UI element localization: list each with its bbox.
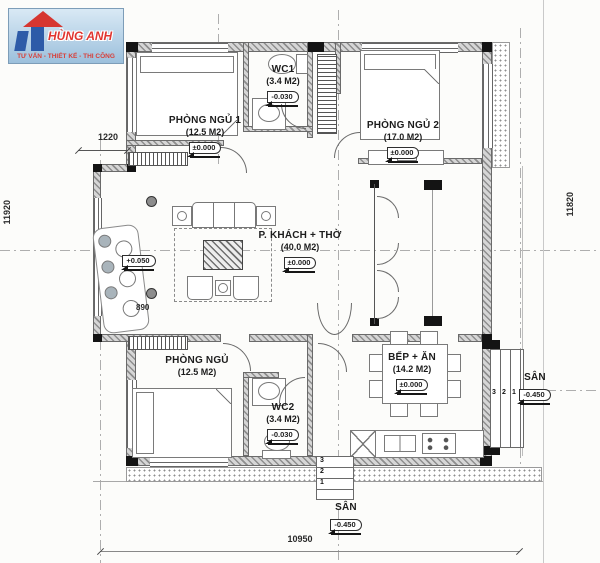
room-area: (12.5 M2) [158,127,252,137]
dimension-living-left: 890 [136,303,149,312]
room-name: PHÒNG NGỦ [150,355,244,367]
stair-stub [482,340,500,349]
level-tag: -0.450 [330,519,361,531]
level-flag [331,533,361,535]
logo-brand-name: HÙNG ANH [48,29,112,43]
room-area: (14.2 M2) [376,364,448,374]
stair-step-number: 3 [492,389,496,396]
toilet-tank [262,450,291,459]
wall-wc2-left [243,372,249,456]
porch-level-label: +0.050 [116,250,162,271]
post [126,42,138,52]
dimension-top-left: 1220 [86,132,130,142]
post [93,164,102,172]
altar-cabinet-line [432,190,433,316]
bed-pillow [140,56,234,73]
side-table [172,206,192,226]
armchair [233,276,259,300]
dining-chair [420,403,438,417]
dimension-bottom-total: 10950 [270,534,330,544]
level-flag [268,105,298,107]
dining-chair [447,354,461,372]
door-arc-partition [377,270,399,292]
kitchen-sink [384,435,416,452]
logo-roof-icon [23,11,63,27]
stair-step-number: 1 [320,479,324,486]
door-arc-partition [377,243,399,265]
room-label-kitchen: BẾP + ĂN (14.2 M2) ±0.000 [376,352,448,395]
dimension-line [78,150,128,151]
dimension-line [100,551,520,552]
axis-marker [146,196,157,207]
door-arc-living-left [317,303,335,335]
door-arc-living-right [334,303,352,335]
room-name: WC2 [254,402,312,414]
yard-label-bottom: SÂN -0.450 [316,502,376,535]
dimension-left-total: 11920 [2,200,12,225]
room-area: (12.5 M2) [150,367,244,377]
wc2-sink [258,382,280,400]
level-flag [285,271,315,273]
bedroom3-wardrobe [128,336,188,350]
planter-stone [118,269,137,288]
bed-fold [216,389,231,404]
room-name: BẾP + ĂN [376,352,448,364]
floor-plan: 3 2 1 3 2 1 PHÒNG NGỦ 1 (12.5 M2) ±0.000… [0,0,600,563]
level-tag: -0.030 [267,429,298,441]
window-right [483,64,493,148]
level-flag [397,393,427,395]
level-flag [388,161,418,163]
room-name: P. KHÁCH + THỜ [250,230,350,242]
room-name: WC1 [254,64,312,76]
stair-step-number: 2 [320,468,324,475]
room-label-bedroom3: PHÒNG NGỦ (12.5 M2) [150,355,244,377]
window-bedroom3 [150,457,228,467]
axis-marker [146,288,157,299]
planter-stone [104,286,118,300]
side-table [256,206,276,226]
post [308,42,324,52]
dining-chair [390,403,408,417]
planter-stone [98,234,112,248]
room-name: PHÒNG NGỦ 1 [158,115,252,127]
room-label-wc2: WC2 (3.4 M2) -0.030 [254,402,312,445]
armchair [187,276,213,300]
hall-closet [317,54,337,134]
partition-line [374,184,375,324]
altar-cabinet-block [424,180,442,190]
bedroom3-bed [132,388,232,458]
logo-house-icon [14,31,29,51]
room-area: (3.4 M2) [254,76,312,86]
door-arc-kitchen [318,343,347,372]
wall-mid-b [249,334,311,342]
logo-tagline: TƯ VẤN - THIẾT KẾ - THI CÔNG [11,53,121,60]
room-area: (40.0 M2) [250,242,350,252]
yard-name: SÂN [316,502,376,514]
door-arc-partition [377,196,399,218]
yard-paving-right [492,42,510,168]
bed-pillow [364,54,436,70]
corner-cabinet [350,430,376,458]
dimension-tick [516,548,523,555]
post [93,334,102,342]
dining-chair [447,380,461,398]
level-flag [190,156,220,158]
yard-name: SÂN [505,372,565,384]
room-name: PHÒNG NGỦ 2 [356,120,450,132]
room-label-bedroom1: PHÒNG NGỦ 1 (12.5 M2) ±0.000 [158,115,252,158]
stove [422,433,456,454]
coffee-table [203,240,243,270]
stair-step-number: 3 [320,457,324,464]
sofa-three-seat [192,202,256,228]
yard-label-right: SÂN -0.450 [505,372,565,405]
dimension-right-total: 11820 [565,192,575,217]
dining-chair [420,331,438,345]
post [482,42,492,52]
bed-pillow [136,392,154,454]
level-flag [124,269,154,271]
altar-cabinet-block [424,316,442,326]
room-label-living: P. KHÁCH + THỜ (40.0 M2) ±0.000 [250,230,350,273]
level-flag [268,443,298,445]
bed-fold [424,69,439,84]
planter-stone [101,260,115,274]
level-flag [520,403,550,405]
wall-mid-d [458,334,482,342]
room-area: (17.0 M2) [356,132,450,142]
door-arc-partition [377,297,399,319]
mini-table [215,280,231,296]
company-logo: HÙNG ANH TƯ VẤN - THIẾT KẾ - THI CÔNG [8,8,124,64]
room-label-wc1: WC1 (3.4 M2) -0.030 [254,64,312,107]
room-label-bedroom2: PHÒNG NGỦ 2 (17.0 M2) ±0.000 [356,120,450,163]
level-tag: -0.450 [519,389,550,401]
property-line [543,0,544,563]
level-tag: -0.030 [267,91,298,103]
dining-chair [390,331,408,345]
room-area: (3.4 M2) [254,414,312,424]
